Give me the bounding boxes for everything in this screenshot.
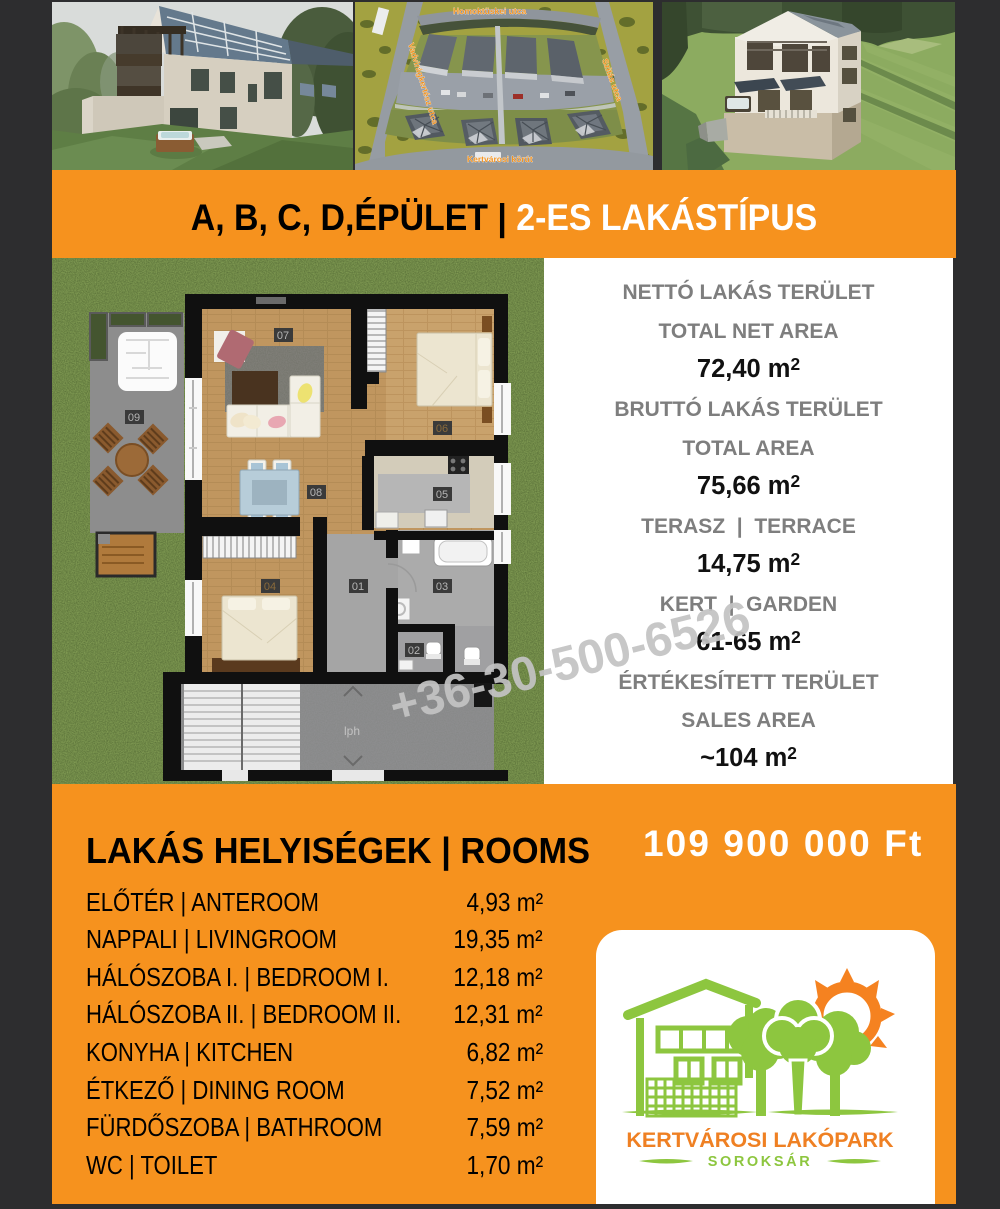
svg-text:lph: lph	[344, 724, 360, 738]
svg-text:SOROKSÁR: SOROKSÁR	[708, 1153, 813, 1170]
svg-text:Kertvárosi körút: Kertvárosi körút	[467, 154, 533, 164]
svg-text:05: 05	[436, 489, 448, 501]
svg-text:07: 07	[277, 330, 289, 342]
svg-text:09: 09	[128, 412, 140, 424]
svg-text:Homoktüskei utca: Homoktüskei utca	[453, 6, 526, 16]
svg-text:KERTVÁROSI LAKÓPARK: KERTVÁROSI LAKÓPARK	[626, 1127, 894, 1152]
svg-text:06: 06	[436, 423, 448, 435]
svg-text:04: 04	[264, 581, 276, 593]
svg-text:08: 08	[310, 487, 322, 499]
svg-text:03: 03	[436, 581, 448, 593]
svg-text:02: 02	[408, 645, 420, 657]
svg-text:01: 01	[352, 581, 364, 593]
